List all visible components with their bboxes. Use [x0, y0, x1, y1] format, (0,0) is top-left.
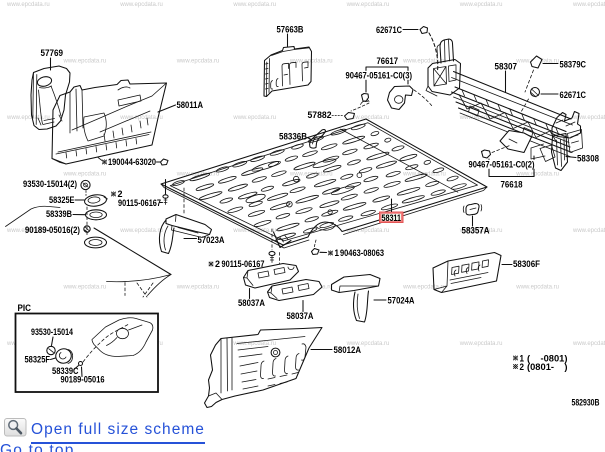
svg-text:58037A: 58037A: [238, 298, 266, 308]
svg-text:www.epcdata.ru: www.epcdata.ru: [63, 172, 107, 178]
svg-text:57769: 57769: [41, 48, 64, 58]
svg-text:2: 2: [215, 259, 220, 269]
svg-text:57023A: 57023A: [198, 235, 226, 245]
svg-text:www.epcdata.ru: www.epcdata.ru: [402, 59, 446, 65]
svg-text:93530-15014(2): 93530-15014(2): [23, 179, 77, 189]
svg-text:90189-05016(2): 90189-05016(2): [25, 225, 80, 235]
svg-text:www.epcdata.ru: www.epcdata.ru: [572, 341, 605, 347]
svg-text:190044-63020: 190044-63020: [108, 157, 156, 167]
svg-text:www.epcdata.ru: www.epcdata.ru: [402, 285, 446, 291]
svg-text:90467-05161-C0(2): 90467-05161-C0(2): [469, 160, 535, 170]
svg-text:582930B: 582930B: [572, 398, 600, 408]
svg-text:www.epcdata.ru: www.epcdata.ru: [572, 115, 605, 121]
svg-text:76617: 76617: [377, 56, 399, 66]
svg-text:www.epcdata.ru: www.epcdata.ru: [572, 228, 605, 234]
svg-text:www.epcdata.ru: www.epcdata.ru: [232, 2, 276, 8]
svg-text:PIC: PIC: [18, 303, 32, 313]
svg-text:(0801- ): (0801- ): [527, 362, 568, 372]
svg-text:www.epcdata.ru: www.epcdata.ru: [346, 2, 390, 8]
svg-text:58357A: 58357A: [462, 226, 491, 236]
svg-text:93530-15014: 93530-15014: [31, 327, 73, 337]
svg-text:90189-05016: 90189-05016: [61, 375, 105, 385]
svg-text:58339B: 58339B: [46, 209, 72, 219]
svg-text:90115-06167: 90115-06167: [222, 259, 265, 269]
svg-text:58336B: 58336B: [279, 132, 307, 142]
svg-text:58308: 58308: [577, 154, 599, 164]
svg-text:www.epcdata.ru: www.epcdata.ru: [459, 341, 503, 347]
svg-text:www.epcdata.ru: www.epcdata.ru: [176, 285, 220, 291]
svg-text:58306F: 58306F: [513, 259, 541, 269]
svg-text:58037A: 58037A: [287, 311, 315, 321]
svg-text:www.epcdata.ru: www.epcdata.ru: [232, 115, 276, 121]
svg-text:90467-05161-C0(3): 90467-05161-C0(3): [346, 71, 413, 81]
svg-text:58012A: 58012A: [334, 345, 362, 355]
svg-text:1: 1: [335, 248, 340, 258]
svg-text:90115-06167: 90115-06167: [118, 198, 161, 208]
svg-text:www.epcdata.ru: www.epcdata.ru: [515, 285, 559, 291]
svg-text:58311: 58311: [382, 213, 402, 223]
svg-text:www.epcdata.ru: www.epcdata.ru: [119, 228, 163, 234]
svg-text:58011A: 58011A: [177, 100, 204, 110]
svg-text:76618: 76618: [501, 180, 523, 190]
svg-text:58379C: 58379C: [560, 60, 587, 70]
svg-text:58325F: 58325F: [25, 355, 51, 365]
svg-text:www.epcdata.ru: www.epcdata.ru: [289, 59, 333, 65]
svg-text:www.epcdata.ru: www.epcdata.ru: [6, 2, 50, 8]
svg-text:www.epcdata.ru: www.epcdata.ru: [119, 115, 163, 121]
svg-text:www.epcdata.ru: www.epcdata.ru: [6, 115, 50, 121]
svg-text:62671C: 62671C: [560, 90, 587, 100]
svg-text:57024A: 57024A: [388, 296, 416, 306]
svg-text:www.epcdata.ru: www.epcdata.ru: [63, 59, 107, 65]
svg-text:90463-08063: 90463-08063: [340, 248, 384, 258]
svg-text:62671C: 62671C: [376, 25, 403, 35]
svg-text:58325E: 58325E: [49, 195, 75, 205]
svg-text:www.epcdata.ru: www.epcdata.ru: [459, 2, 503, 8]
svg-text:58307: 58307: [495, 62, 518, 72]
svg-text:www.epcdata.ru: www.epcdata.ru: [119, 2, 163, 8]
svg-text:www.epcdata.ru: www.epcdata.ru: [63, 285, 107, 291]
svg-text:2: 2: [520, 362, 525, 372]
svg-text:www.epcdata.ru: www.epcdata.ru: [176, 59, 220, 65]
svg-text:57663B: 57663B: [277, 25, 304, 35]
svg-text:www.epcdata.ru: www.epcdata.ru: [572, 2, 605, 8]
svg-text:57882: 57882: [308, 110, 332, 120]
